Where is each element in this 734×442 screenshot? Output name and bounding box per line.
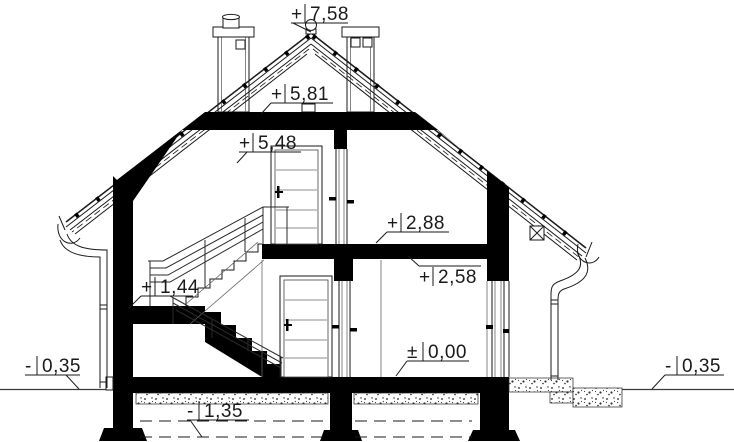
level-sign: + [271, 84, 283, 105]
gravel-subbase-right [354, 393, 478, 404]
footing-center [320, 430, 362, 441]
attic-ceiling-slab [182, 112, 438, 130]
chimney-right [342, 27, 379, 112]
level-value: 1,35 [204, 401, 243, 422]
level-value: 0,35 [682, 356, 721, 377]
level-mark-attic-ceiling-top: + 5,81 [261, 84, 333, 114]
chimney-right-opening-2 [363, 38, 372, 47]
level-mark-foundation-depth: - 1,35 [187, 401, 249, 437]
door-handle [329, 197, 336, 201]
level-mark-upper-floor-soffit: + 2,58 [408, 256, 481, 288]
level-mark-ground-floor: ± 0,00 [396, 342, 469, 376]
house-section-svg: + 7,58 + 5,81 + 5,48 + 2,88 + 2,58 + 1,4… [0, 0, 734, 442]
window-handle [486, 325, 493, 329]
chimney-left-opening [236, 40, 245, 49]
level-sign: - [25, 356, 32, 377]
door-ground-center-section [332, 281, 357, 377]
level-mark-ridge: + 7,58 [291, 4, 349, 32]
footing-right [468, 430, 520, 441]
level-value: 0,00 [428, 342, 467, 363]
level-sign: + [239, 133, 251, 154]
ground-floor-slab [133, 377, 509, 393]
level-value: 5,81 [290, 84, 329, 105]
level-value: 2,88 [406, 213, 445, 234]
window-right-section [486, 281, 509, 377]
level-mark-grade-right: - 0,35 [652, 356, 724, 389]
level-mark-stair-landing: + 1,44 [129, 277, 199, 308]
door-ground [280, 276, 332, 377]
level-sign: + [419, 267, 431, 288]
downspout-right [551, 252, 588, 380]
exterior-step-upper [550, 392, 573, 403]
upper-floor-slab [262, 244, 509, 259]
foundation-center [330, 393, 352, 430]
terrace-slab [509, 378, 573, 392]
level-value: 1,44 [160, 277, 199, 298]
purlin-section-marker [530, 226, 544, 240]
level-value: 5,48 [258, 133, 297, 154]
exterior-step-lower [573, 388, 622, 407]
level-value: 0,35 [42, 356, 81, 377]
chimney-right-cap [342, 27, 379, 37]
chimney-right-body [347, 37, 374, 112]
level-mark-upper-floor-top: + 2,88 [376, 213, 449, 243]
attic-partition-header [334, 128, 347, 149]
chimney-right-opening-1 [351, 38, 360, 47]
ground-partition-header [334, 259, 353, 281]
ridge-purlin-section [302, 104, 315, 112]
wall-left [113, 176, 133, 428]
gutter-left [58, 224, 80, 243]
level-sign: + [387, 213, 399, 234]
level-mark-grade-left: - 0,35 [25, 356, 81, 389]
door-attic-center-section [329, 149, 354, 244]
door-attic [271, 146, 322, 244]
level-sign: + [141, 277, 153, 298]
wall-right-upper [487, 171, 509, 281]
level-value: 2,58 [438, 267, 477, 288]
level-sign: - [187, 401, 194, 422]
foundation-right [480, 393, 509, 430]
door-handle [332, 325, 339, 329]
roof-section-right [415, 112, 509, 188]
footing-left [99, 428, 147, 441]
level-sign: ± [407, 342, 418, 363]
level-sign: - [665, 356, 672, 377]
level-sign: + [291, 4, 303, 25]
level-value: 7,58 [310, 4, 349, 25]
cross-section-drawing: + 7,58 + 5,81 + 5,48 + 2,88 + 2,58 + 1,4… [0, 0, 734, 442]
